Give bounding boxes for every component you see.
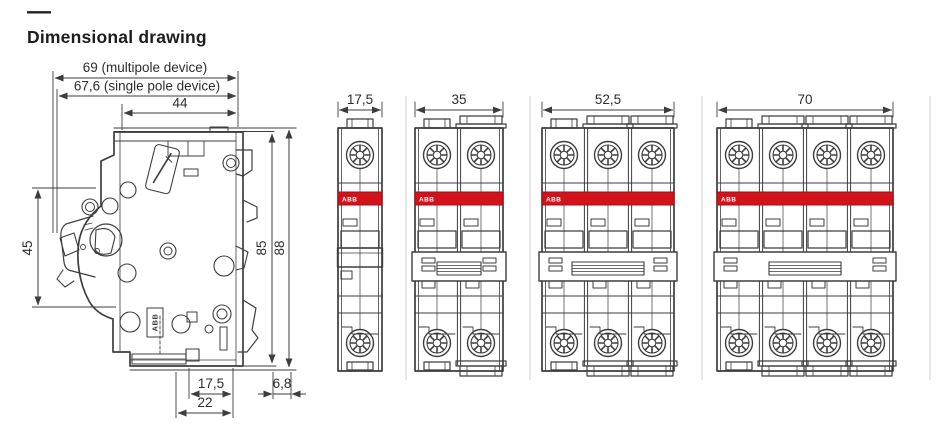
screw-terminal-icon bbox=[468, 142, 495, 169]
dim-label-44: 44 bbox=[172, 96, 188, 111]
dim-label-88: 88 bbox=[272, 240, 287, 255]
abb-brand-band: ABB bbox=[717, 192, 893, 205]
dimensional-drawing-page: — Dimensional drawing bbox=[0, 0, 938, 445]
abb-logo-band: ABB bbox=[342, 197, 357, 204]
front-views-group: 17,5ABB35ABB52,5ABB70ABB bbox=[338, 92, 897, 376]
screw-terminal-icon bbox=[858, 142, 885, 169]
screw-terminal-icon bbox=[814, 142, 841, 169]
dim-label-45: 45 bbox=[20, 240, 35, 255]
screw-terminal-icon bbox=[770, 142, 797, 169]
width-dimension-label: 52,5 bbox=[595, 92, 621, 107]
handle-tie-bar bbox=[412, 252, 506, 288]
screw-terminal-icon bbox=[639, 142, 666, 169]
abb-brand-band: ABB bbox=[338, 192, 382, 205]
front-view-1-pole: 17,5ABB bbox=[338, 92, 383, 371]
dim-label-6-8: 6,8 bbox=[273, 376, 292, 391]
width-dimension-label: 70 bbox=[797, 92, 812, 107]
switch-lever bbox=[57, 216, 95, 287]
abb-logo-side: ABB bbox=[147, 308, 163, 337]
front-view-2-pole: 35ABB bbox=[412, 92, 506, 376]
abb-logo-band: ABB bbox=[721, 197, 736, 204]
dimensional-drawing-canvas: ABB bbox=[0, 0, 938, 445]
width-dimension-label: 35 bbox=[451, 92, 466, 107]
screw-terminal-icon bbox=[551, 142, 578, 169]
screw-terminal-icon bbox=[347, 142, 374, 169]
screw-terminal-icon bbox=[424, 142, 451, 169]
width-dimension-label: 17,5 bbox=[347, 92, 373, 107]
abb-brand-band: ABB bbox=[415, 192, 503, 205]
dim-label-69: 69 (multipole device) bbox=[83, 60, 208, 75]
screw-terminal-icon bbox=[595, 142, 622, 169]
front-view-3-pole: 52,5ABB bbox=[539, 92, 677, 376]
dim-label-85: 85 bbox=[254, 240, 269, 255]
front-view-4-pole: 70ABB bbox=[714, 92, 896, 376]
abb-logo-band: ABB bbox=[419, 197, 434, 204]
dim-label-17-5-bottom: 17,5 bbox=[198, 376, 224, 391]
screw-terminal-icon bbox=[726, 142, 753, 169]
abb-logo-band: ABB bbox=[546, 197, 561, 204]
handle-tie-bar bbox=[714, 252, 896, 288]
abb-brand-band: ABB bbox=[542, 192, 674, 205]
abb-logo-text: ABB bbox=[151, 313, 160, 331]
dim-label-22: 22 bbox=[197, 395, 212, 410]
screwdriver-torque-icon bbox=[145, 144, 180, 195]
dim-label-67-6: 67,6 (single pole device) bbox=[74, 79, 220, 94]
